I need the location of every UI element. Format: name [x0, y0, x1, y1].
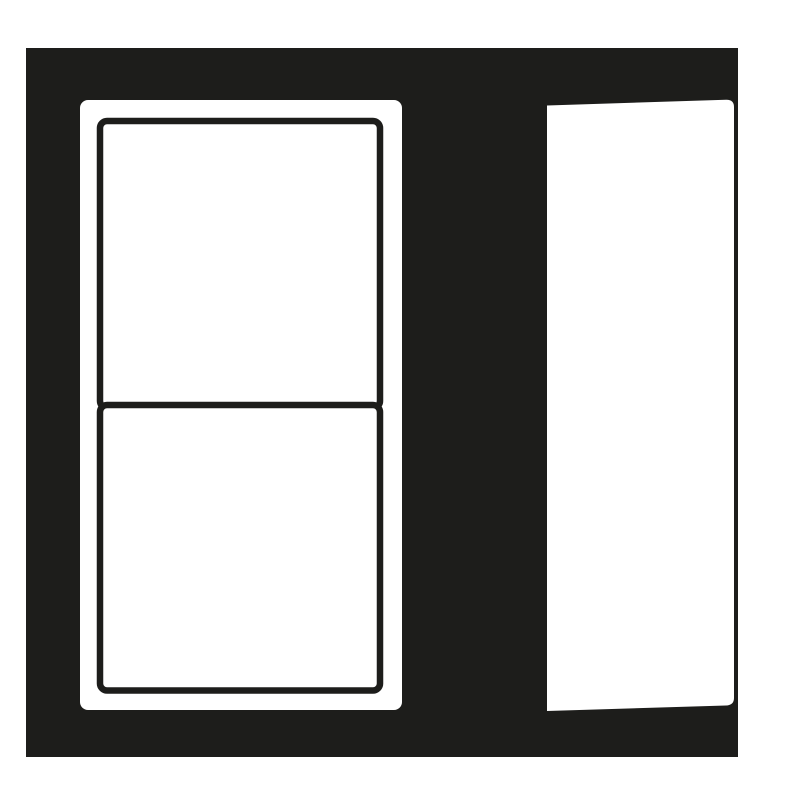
window-pane-top [100, 121, 380, 408]
window-pane-bottom [100, 405, 380, 691]
window-and-door-pictogram [0, 0, 800, 800]
two-pane-window-icon [80, 100, 402, 710]
pictogram-stage [0, 0, 800, 800]
open-door-icon [547, 100, 734, 711]
